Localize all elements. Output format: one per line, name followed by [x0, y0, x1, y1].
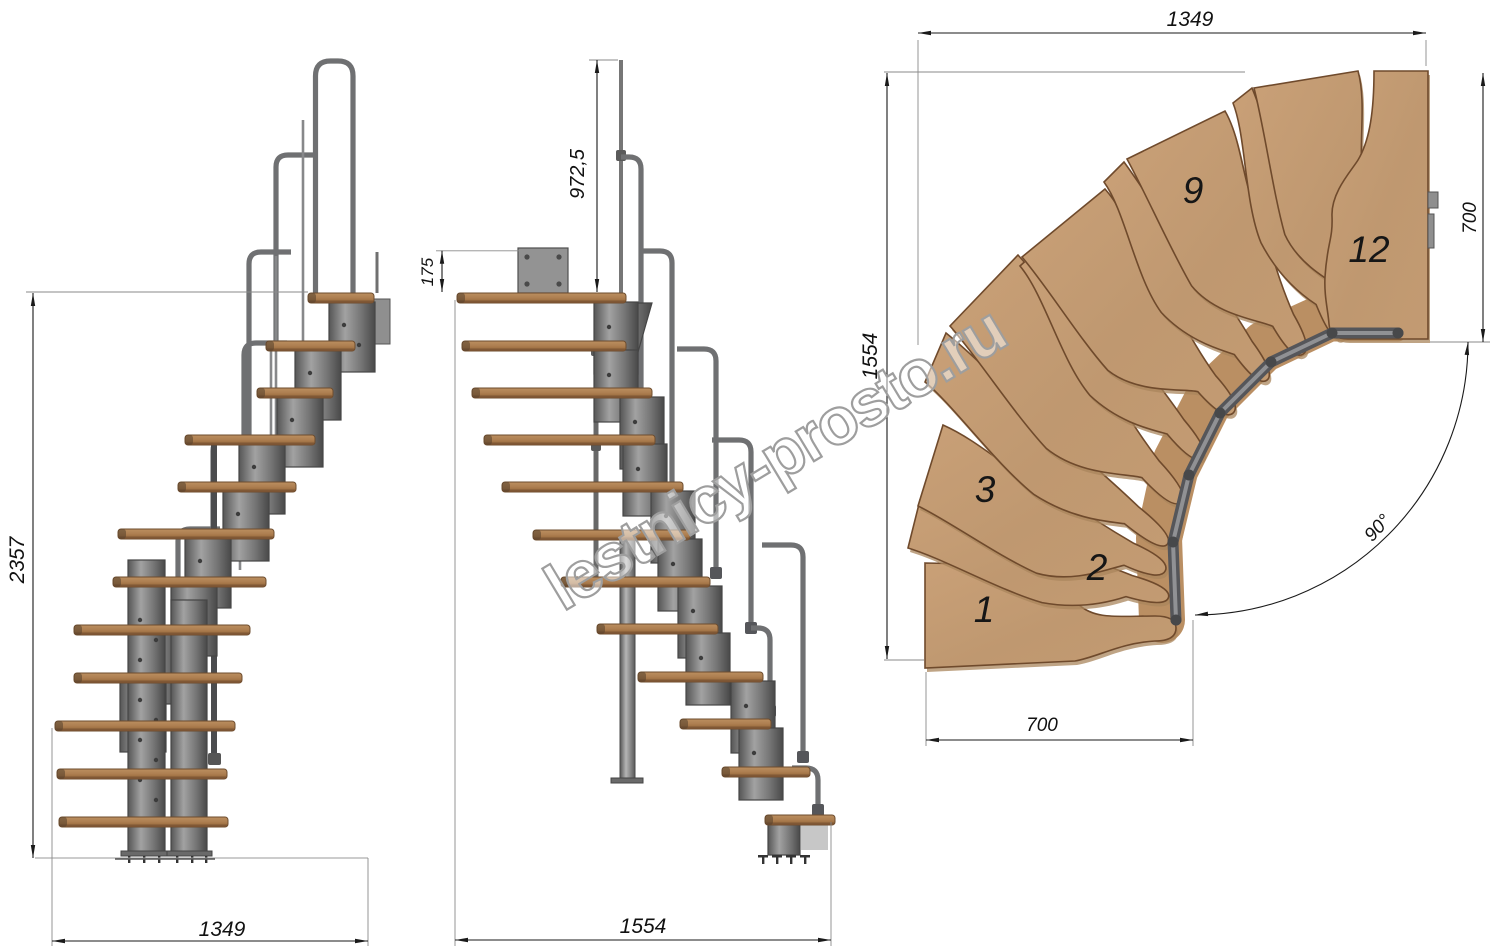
svg-text:700: 700	[1026, 715, 1058, 736]
svg-text:1: 1	[974, 589, 995, 630]
svg-text:12: 12	[1348, 229, 1390, 270]
svg-text:1349: 1349	[199, 918, 246, 941]
svg-text:175: 175	[418, 257, 437, 286]
svg-text:3: 3	[975, 469, 996, 510]
svg-text:9: 9	[1183, 170, 1204, 211]
svg-text:972,5: 972,5	[567, 148, 589, 199]
svg-text:2357: 2357	[6, 535, 29, 584]
svg-text:1349: 1349	[1167, 8, 1214, 31]
svg-text:2: 2	[1086, 547, 1108, 588]
svg-text:1554: 1554	[620, 915, 667, 938]
svg-text:700: 700	[1460, 202, 1481, 234]
